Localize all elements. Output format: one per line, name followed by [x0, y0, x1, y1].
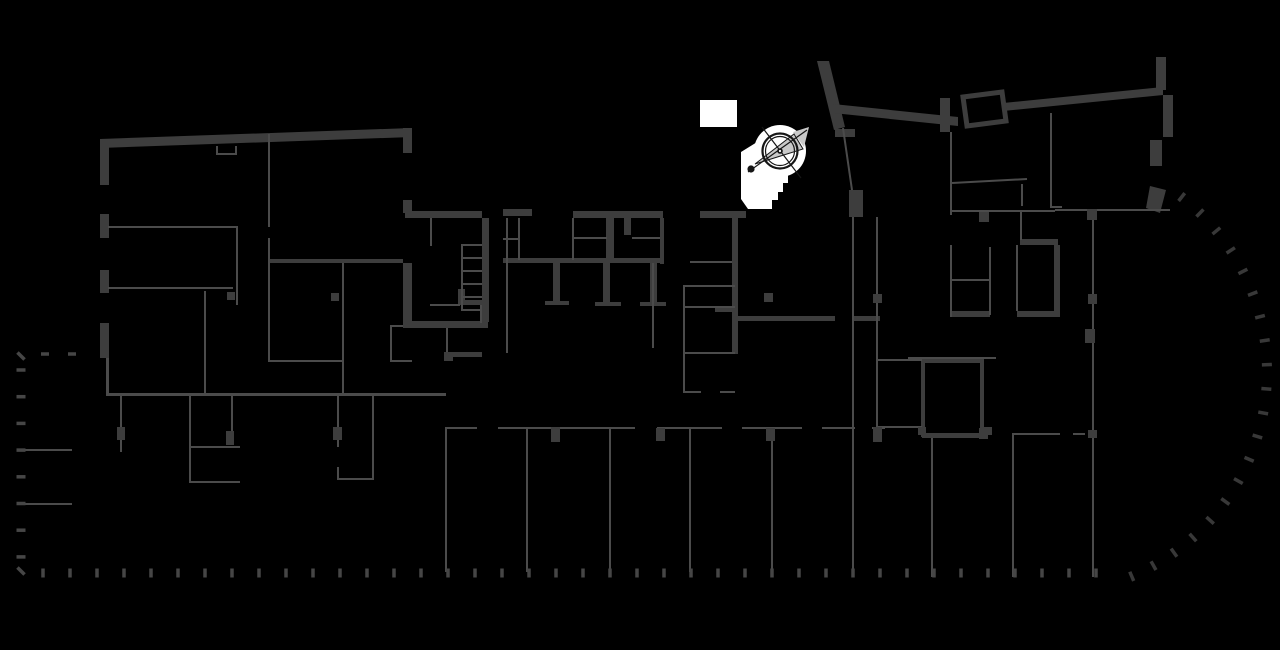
floor-plan	[0, 0, 1280, 650]
boundary-ticks-bottom	[41, 569, 1098, 578]
floor-plan-stage	[0, 0, 1280, 650]
thick-walls	[100, 57, 1173, 438]
boundary-corner-ticks	[16, 351, 26, 576]
outer-wall-polygons	[100, 61, 1166, 213]
boundary-ticks-left	[17, 368, 26, 558]
boundary-ticks-arc	[1128, 192, 1272, 582]
thin-wall-lines	[843, 128, 1027, 190]
room-outlines-thick	[923, 361, 982, 435]
white-patch	[700, 100, 737, 127]
tilted-room-outline	[963, 92, 1006, 126]
compass-center-pin	[779, 150, 781, 152]
boundary-ticks-top-stub	[41, 352, 76, 356]
thin-walls	[18, 113, 1170, 577]
